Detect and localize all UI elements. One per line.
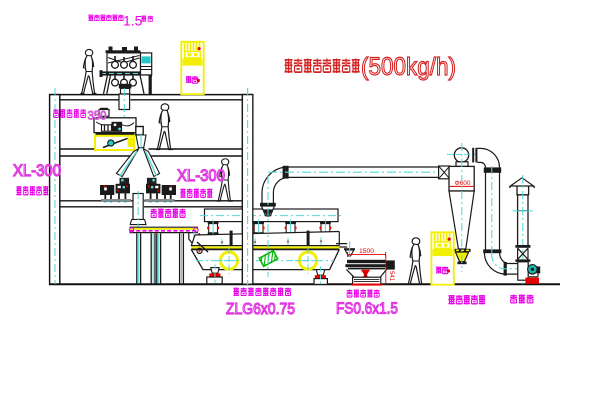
svg-text:541: 541 — [388, 271, 394, 282]
svg-text:1500: 1500 — [359, 249, 375, 255]
svg-text:XL-300: XL-300 — [177, 166, 225, 185]
svg-text:XL-300: XL-300 — [13, 161, 61, 180]
svg-text:(500kg/h): (500kg/h) — [361, 53, 456, 81]
svg-text:Φ600: Φ600 — [455, 180, 471, 187]
svg-text:350: 350 — [88, 109, 107, 123]
svg-text:FS0.6x1.5: FS0.6x1.5 — [336, 301, 398, 318]
svg-text:1.5: 1.5 — [123, 13, 143, 29]
svg-text:ZLG6x0.75: ZLG6x0.75 — [226, 301, 295, 318]
